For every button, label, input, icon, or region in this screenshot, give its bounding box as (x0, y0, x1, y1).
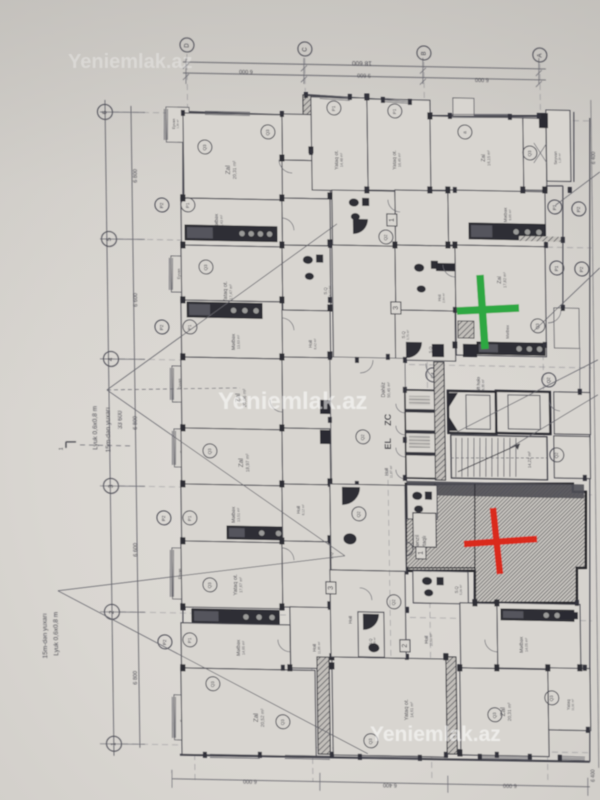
svg-text:Q2: Q2 (356, 511, 361, 518)
svg-text:16,45 m²: 16,45 m² (398, 152, 402, 167)
svg-text:P1: P1 (554, 265, 559, 271)
svg-text:20,52 m²: 20,52 m² (260, 708, 265, 727)
svg-text:16,15 m²: 16,15 m² (486, 150, 491, 166)
svg-text:6 600: 6 600 (133, 293, 139, 307)
svg-text:6 800: 6 800 (133, 671, 139, 685)
svg-text:P2: P2 (579, 266, 584, 272)
svg-text:Q3: Q3 (207, 582, 212, 589)
svg-text:Q3: Q3 (202, 144, 207, 151)
svg-text:Zal: Zal (225, 165, 232, 175)
svg-text:Yeniemlak.az: Yeniemlak.az (370, 723, 501, 746)
svg-text:EL: EL (383, 437, 393, 449)
svg-text:P1: P1 (187, 637, 192, 643)
svg-text:2,55 m²: 2,55 m² (372, 637, 376, 646)
svg-text:P2: P2 (159, 202, 164, 208)
svg-text:P2: P2 (576, 206, 581, 212)
svg-text:P1: P1 (185, 202, 190, 208)
svg-text:5,17 m²: 5,17 m² (328, 286, 332, 296)
svg-text:6 000: 6 000 (503, 782, 517, 788)
svg-text:Lyuk 0,6x0,8 m: Lyuk 0,6x0,8 m (92, 406, 100, 450)
svg-text:1,39 m²: 1,39 m² (176, 119, 180, 128)
svg-text:17,67 m²: 17,67 m² (238, 576, 243, 592)
svg-text:2,94 m²: 2,94 m² (442, 293, 446, 303)
svg-text:Q3: Q3 (527, 150, 532, 157)
svg-text:Q3: Q3 (280, 719, 285, 726)
svg-text:6 600: 6 600 (133, 543, 139, 557)
svg-text:17,82 m²: 17,82 m² (502, 271, 507, 287)
svg-text:Q3: Q3 (265, 129, 270, 136)
svg-text:1,29 m²: 1,29 m² (558, 153, 562, 163)
svg-text:Zal: Zal (253, 713, 260, 723)
svg-text:P1: P1 (331, 105, 336, 111)
svg-text:11,85 m²: 11,85 m² (317, 641, 321, 655)
svg-text:a: a (462, 131, 468, 134)
svg-text:P2: P2 (161, 515, 166, 521)
svg-text:14,22 m²: 14,22 m² (527, 451, 532, 468)
svg-text:D: D (185, 43, 191, 48)
svg-text:8,12 m²: 8,12 m² (301, 503, 305, 515)
svg-text:1: 1 (59, 447, 65, 450)
svg-text:6 800: 6 800 (133, 169, 139, 183)
svg-text:Q2: Q2 (546, 377, 551, 384)
svg-text:Yeniemlak.az: Yeniemlak.az (218, 388, 367, 415)
svg-text:P2: P2 (162, 639, 167, 645)
svg-text:9,35 m²: 9,35 m² (481, 379, 485, 391)
svg-text:Eyvan: Eyvan (177, 269, 181, 280)
svg-text:Holl: Holl (348, 616, 353, 624)
svg-text:11,50 m²: 11,50 m² (429, 633, 433, 647)
svg-text:6 800: 6 800 (133, 416, 139, 430)
svg-text:6 000: 6 000 (475, 76, 489, 82)
svg-text:Q2: Q2 (360, 434, 365, 441)
svg-text:14,48 m²: 14,48 m² (340, 152, 344, 167)
svg-text:9 600: 9 600 (357, 72, 371, 78)
svg-text:S.Q: S.Q (329, 552, 334, 559)
svg-text:14,61 m²: 14,61 m² (409, 701, 414, 717)
svg-text:S.Q: S.Q (428, 346, 433, 353)
svg-text:18 600: 18 600 (352, 59, 372, 66)
svg-text:6 400: 6 400 (591, 151, 597, 164)
svg-text:B: B (421, 51, 427, 55)
svg-text:3: 3 (328, 586, 335, 590)
svg-text:1: 1 (389, 218, 396, 222)
svg-text:Q2: Q2 (391, 599, 396, 606)
svg-text:6 000: 6 000 (239, 68, 253, 74)
svg-text:Eyvan: Eyvan (172, 119, 176, 130)
svg-text:P1: P1 (187, 515, 192, 521)
svg-text:15m-dən yuxarı: 15m-dən yuxarı (105, 407, 113, 452)
svg-text:Q3: Q3 (203, 264, 208, 271)
svg-text:6 400: 6 400 (591, 769, 597, 782)
svg-text:1: 1 (418, 551, 425, 555)
svg-text:Lyuk 0,6x0,8 m: Lyuk 0,6x0,8 m (53, 612, 61, 656)
svg-text:17,47 m²: 17,47 m² (228, 284, 233, 300)
svg-text:50,45 m²: 50,45 m² (386, 381, 391, 397)
svg-text:S.Q: S.Q (416, 506, 420, 513)
svg-text:14,05 m²: 14,05 m² (525, 637, 529, 652)
svg-text:8,42 m²: 8,42 m² (313, 338, 317, 350)
svg-text:33 600: 33 600 (118, 410, 124, 429)
svg-text:P2: P2 (159, 324, 164, 330)
svg-text:6 400: 6 400 (383, 782, 397, 788)
svg-text:3,75 m²: 3,75 m² (406, 330, 410, 340)
svg-text:S.Q: S.Q (369, 638, 373, 645)
svg-text:A: A (537, 53, 543, 57)
svg-text:20,31 m²: 20,31 m² (232, 160, 237, 179)
svg-text:2: 2 (402, 644, 409, 648)
svg-text:Q3: Q3 (549, 695, 554, 702)
svg-text:Q3: Q3 (207, 448, 212, 455)
svg-text:20,31 m²: 20,31 m² (507, 702, 512, 721)
svg-text:Q2: Q2 (383, 234, 388, 241)
svg-text:14,65 m²: 14,65 m² (242, 640, 246, 655)
svg-text:Q3: Q3 (492, 712, 497, 719)
svg-text:11,87 m²: 11,87 m² (389, 465, 393, 479)
svg-text:15m-dən yuxarı: 15m-dən yuxarı (42, 613, 50, 658)
svg-text:9,65 m²: 9,65 m² (508, 209, 512, 221)
svg-text:11,91 m²: 11,91 m² (571, 699, 575, 711)
svg-text:5,06 m²: 5,06 m² (459, 585, 463, 595)
svg-text:ZC: ZC (383, 413, 393, 426)
svg-text:Q3: Q3 (210, 681, 215, 688)
svg-text:13,51 m²: 13,51 m² (237, 507, 241, 522)
svg-text:Zal: Zal (238, 458, 245, 468)
svg-text:Q2: Q2 (554, 452, 559, 459)
svg-text:13,63 m²: 13,63 m² (237, 334, 241, 349)
svg-text:C: C (302, 47, 308, 52)
svg-text:6 000: 6 000 (243, 778, 257, 784)
svg-text:Mətbəx: Mətbəx (505, 324, 510, 339)
svg-text:3: 3 (393, 306, 400, 310)
svg-text:Yeniemlak.az: Yeniemlak.az (68, 51, 193, 73)
svg-text:18,97 m²: 18,97 m² (245, 453, 250, 472)
svg-text:P1: P1 (392, 108, 397, 114)
